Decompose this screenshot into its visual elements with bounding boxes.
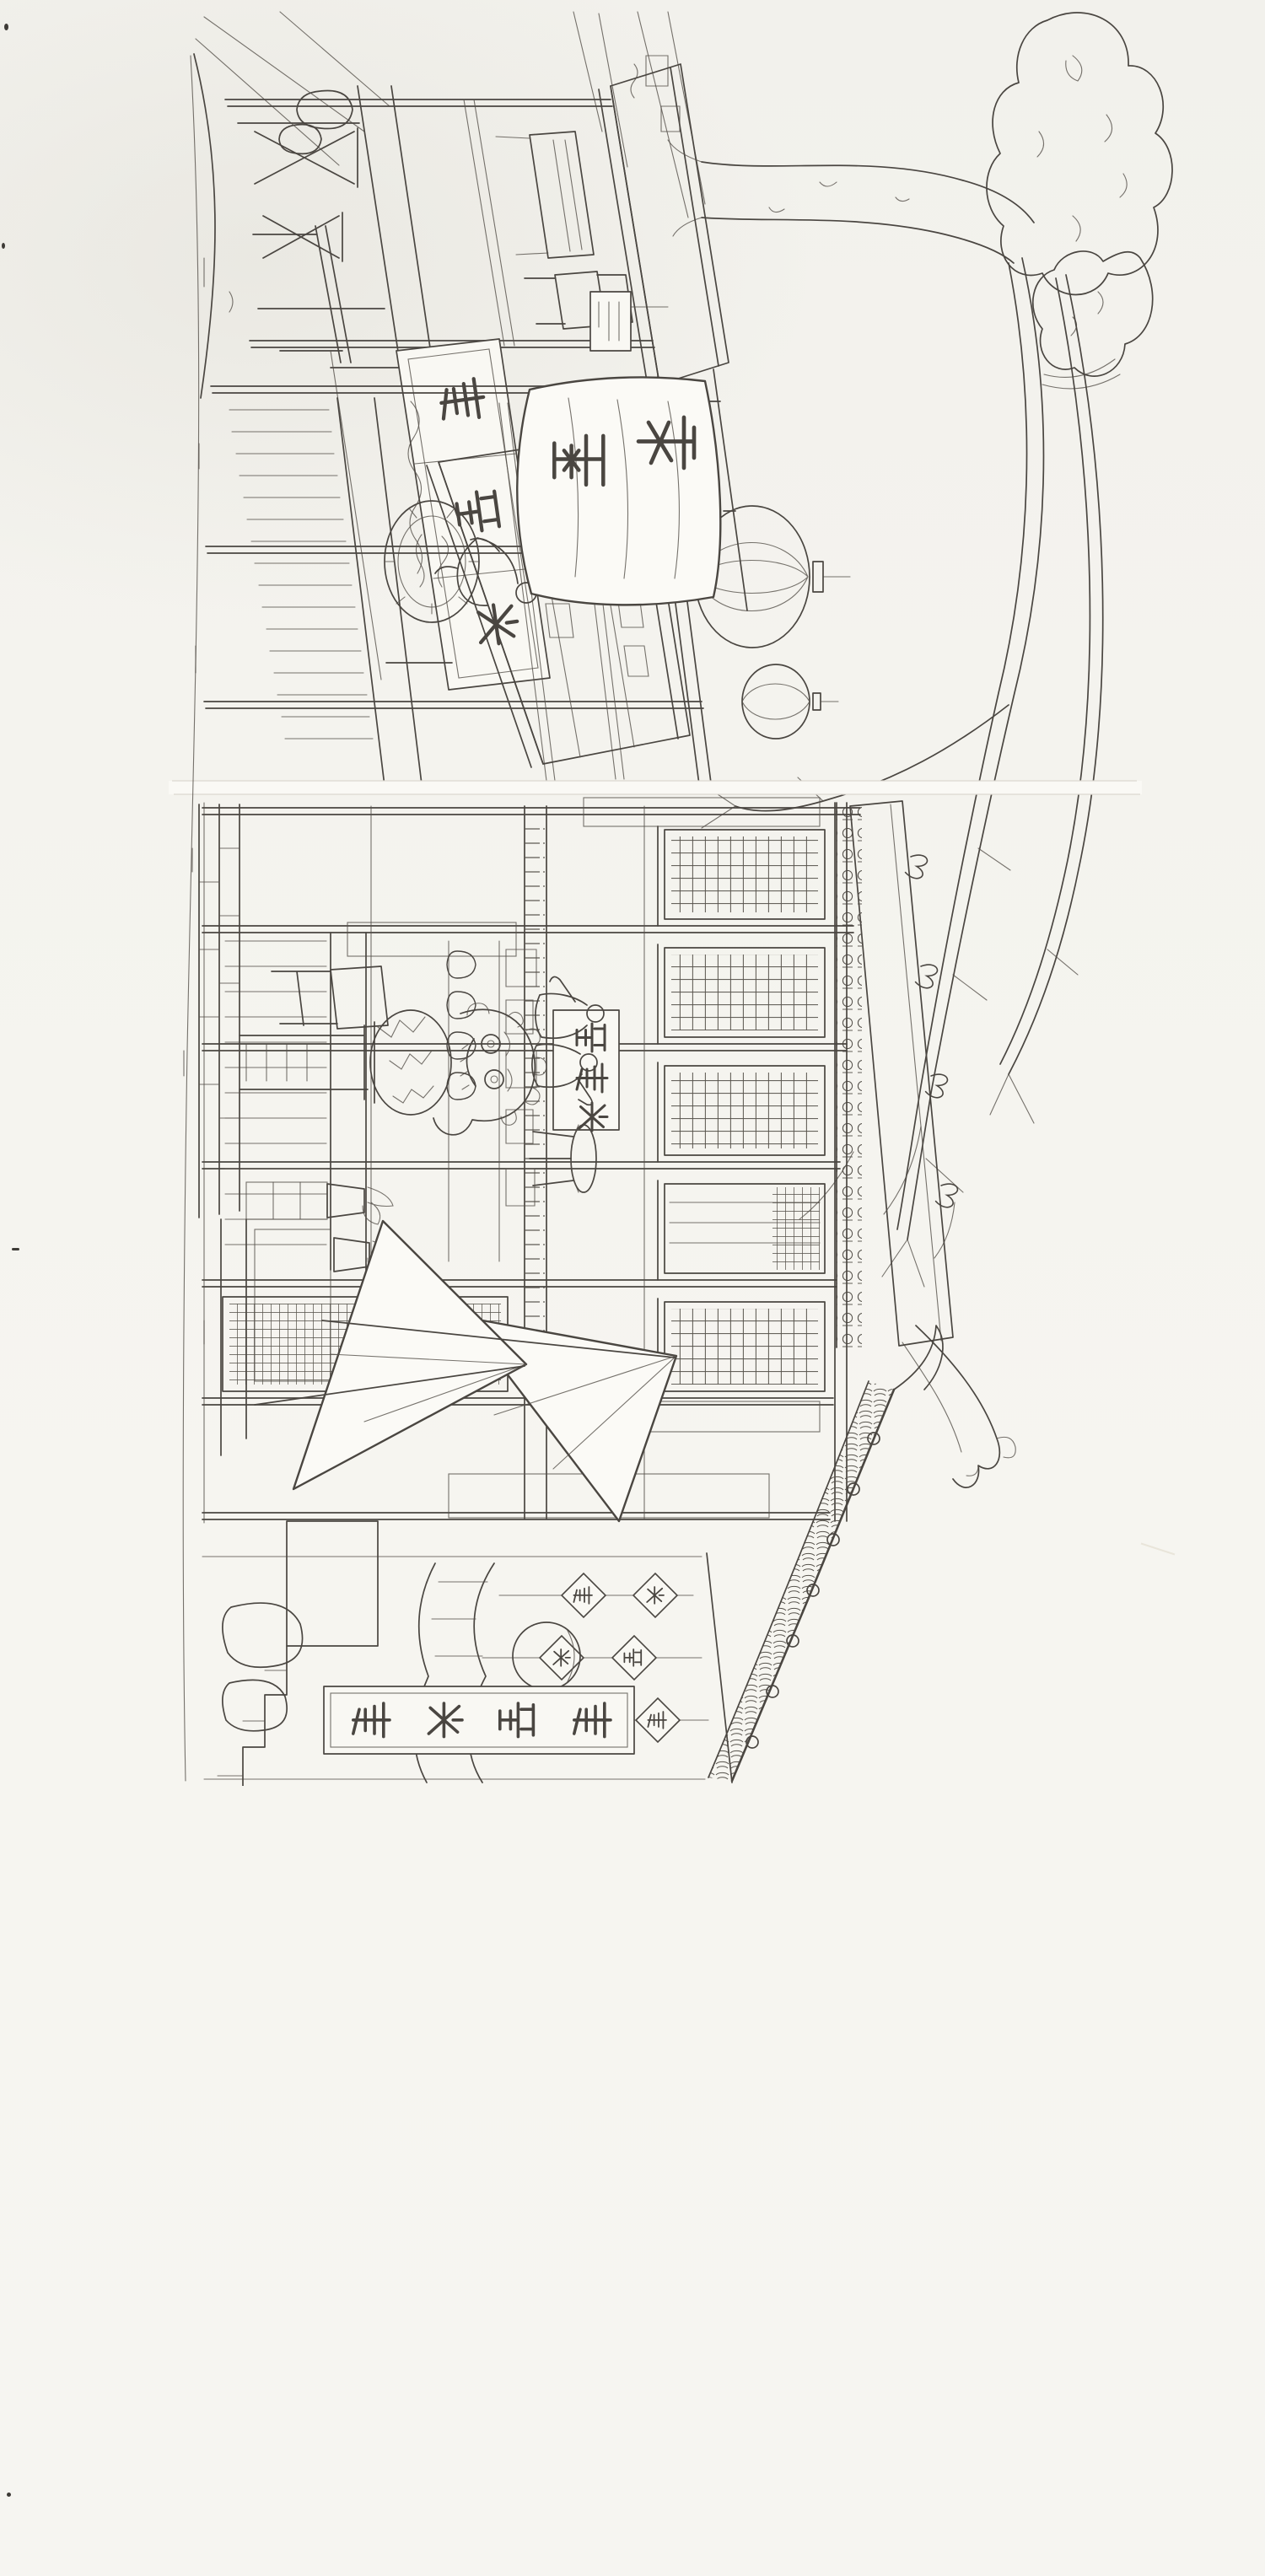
shophouse-facade [199, 798, 860, 1523]
artwork-scan [162, 5, 1174, 1786]
storage-jar [223, 1603, 303, 1667]
ink-speck [12, 1248, 19, 1250]
paper-lantern-small [742, 664, 838, 739]
ink-speck [2, 243, 5, 249]
tree-branch [907, 258, 1043, 1240]
vertical-shop-sign [324, 1686, 634, 1754]
street-ground [183, 56, 233, 1781]
distant-street [196, 12, 705, 218]
tile-end-caps-row [837, 803, 862, 1347]
square-stool [272, 966, 388, 1029]
ink-speck [7, 2493, 11, 2497]
balcony-railing [525, 806, 545, 1396]
ink-speck [4, 24, 8, 30]
ink-sketch-svg [162, 5, 1174, 1786]
storage-jar [223, 1680, 287, 1730]
street-panorama [169, 12, 1172, 1786]
shophouse-roof-ridge [837, 801, 1015, 1487]
page-seam [169, 781, 1142, 794]
upturned-eave-corner [916, 1326, 999, 1487]
stone-steps [199, 804, 240, 1218]
small-stall-banner [590, 292, 668, 351]
stool-stack [255, 128, 358, 261]
flag-banner [517, 369, 747, 610]
scanned-sketchbook-page: { "page": { "width_px": 1500, "height_px… [0, 0, 1265, 2576]
